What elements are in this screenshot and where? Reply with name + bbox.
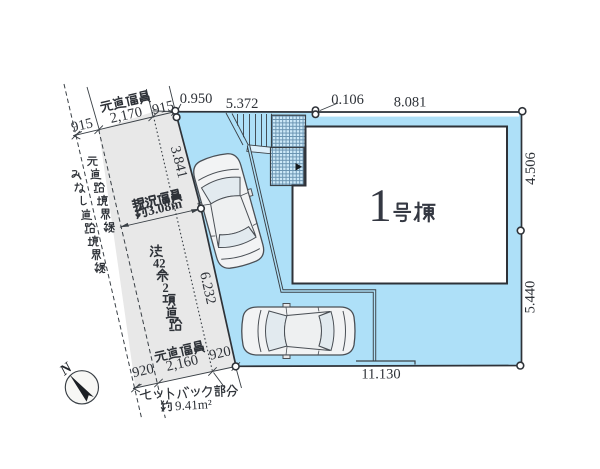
svg-text:4.506: 4.506 bbox=[523, 152, 539, 185]
svg-text:2: 2 bbox=[162, 281, 168, 295]
svg-text:0.106: 0.106 bbox=[331, 92, 364, 108]
svg-text:0.950: 0.950 bbox=[180, 91, 213, 107]
svg-text:9.41m²: 9.41m² bbox=[175, 396, 213, 413]
svg-text:11.130: 11.130 bbox=[361, 367, 400, 383]
svg-text:5.372: 5.372 bbox=[226, 96, 259, 112]
svg-text:1: 1 bbox=[368, 180, 392, 232]
svg-text:5.440: 5.440 bbox=[523, 281, 539, 314]
svg-text:42: 42 bbox=[153, 256, 166, 270]
svg-text:8.081: 8.081 bbox=[394, 95, 427, 111]
